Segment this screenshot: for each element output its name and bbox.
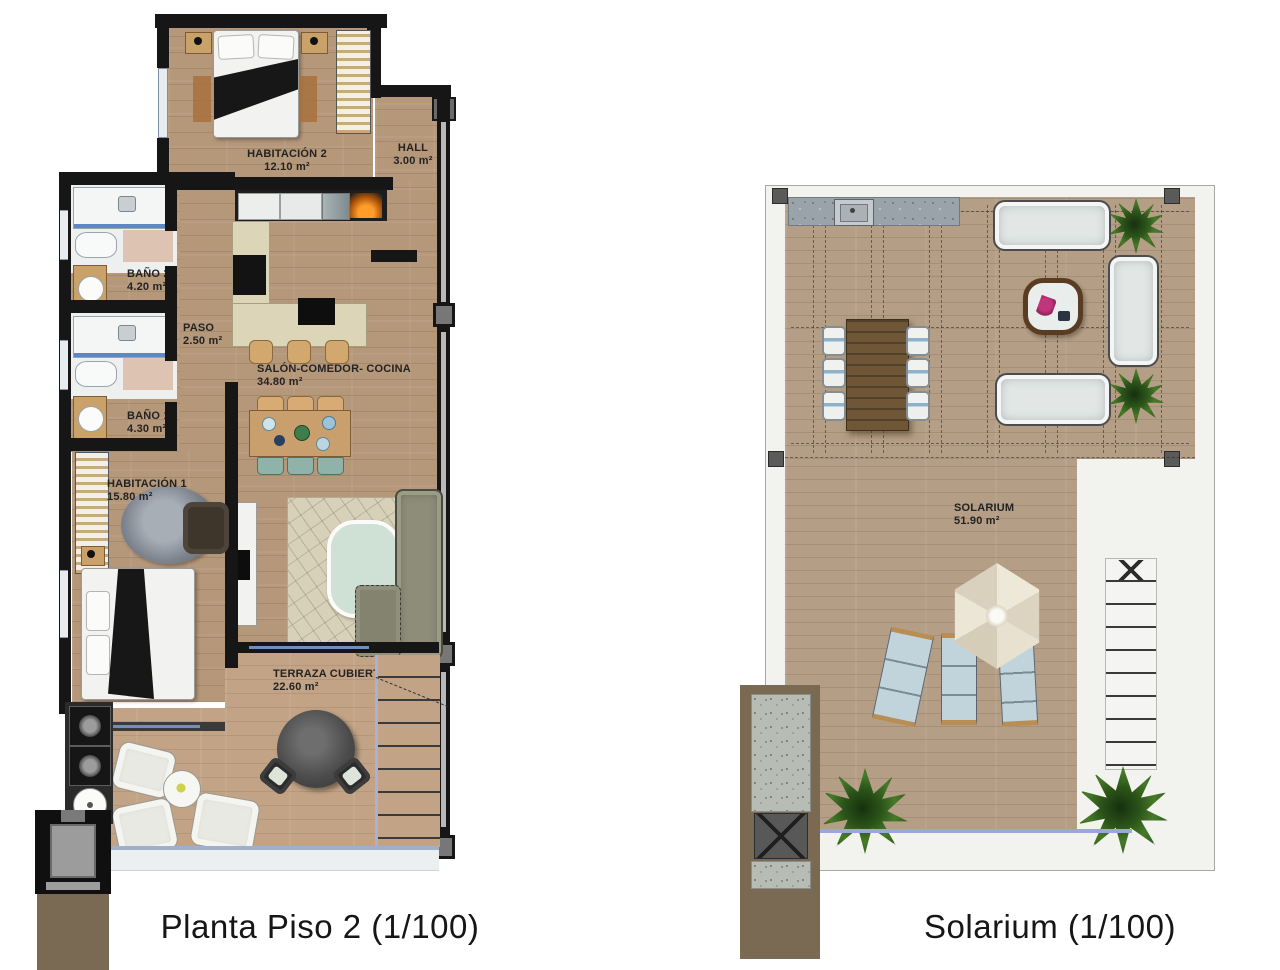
wardrobe-hab2 [336, 30, 371, 134]
flower-decor [1035, 295, 1057, 319]
room-label-habitacion2: HABITACIÓN 2 12.10 m² [227, 148, 347, 174]
stairs-diagonal [376, 677, 449, 707]
cooktop [298, 298, 335, 325]
bar-stool [325, 340, 349, 364]
gravel-strip [751, 694, 811, 812]
tap-dot [850, 208, 855, 213]
room-label-paso: PASO 2.50 m² [183, 322, 222, 348]
plan-solarium: SOLARIUM 51.90 m² [740, 180, 1222, 960]
room-label-habitacion1: HABITACIÓN 1 15.80 m² [107, 478, 187, 504]
bathmat-bano2 [123, 230, 173, 262]
salon-terraza-wall [225, 642, 439, 653]
plate [294, 425, 310, 441]
bed-blanket [108, 569, 154, 699]
toilet-bano1 [75, 361, 117, 387]
bathmat-bano1 [123, 358, 173, 390]
room-label-solarium: SOLARIUM 51.90 m² [954, 502, 1014, 528]
oven-glow [350, 193, 382, 218]
lamp-dot [194, 37, 202, 45]
plan-piso2: HABITACIÓN 2 12.10 m² HALL 3.00 m² SALÓN… [35, 10, 477, 960]
sink-basin [78, 276, 104, 302]
washer-drum [79, 755, 101, 777]
vanity-bano1 [73, 396, 107, 444]
armchair-dark-hab1 [183, 502, 229, 554]
hab1-window [60, 570, 68, 638]
cabinet [280, 193, 322, 220]
bedside-runner [193, 76, 211, 122]
shower-bano2 [73, 187, 175, 229]
cabinet [238, 193, 280, 220]
outdoor-dining-table [846, 319, 909, 431]
food-plate [172, 780, 190, 796]
shower-glass [74, 224, 174, 228]
kitchen-counter [235, 190, 387, 221]
toilet-bano2 [75, 232, 117, 258]
bedroom2-top-wall [155, 14, 387, 28]
bath-top-wall [59, 172, 235, 185]
gravel-strip [751, 861, 811, 889]
chimney-shaft [35, 810, 111, 894]
lounge-sofa-top [993, 200, 1111, 251]
lamp-dot [87, 550, 95, 558]
plate [274, 435, 285, 446]
terrace-side-table [163, 770, 201, 808]
washer [69, 746, 111, 786]
bedroom2-window [158, 68, 168, 138]
shower-bano1 [73, 316, 175, 358]
room-label-terraza: TERRAZA CUBIERTA 22.60 m² [273, 668, 387, 694]
outdoor-chair [822, 358, 846, 388]
outdoor-chair [822, 391, 846, 421]
bano1-right-wall-a [165, 313, 177, 361]
shower-glass [74, 353, 174, 357]
sofa-l [395, 489, 443, 659]
shaft-box [50, 824, 96, 878]
washer [69, 706, 111, 746]
shower-head [118, 196, 136, 212]
pillar [768, 451, 784, 467]
bath1-window [60, 340, 68, 390]
chair-cushion [267, 766, 288, 787]
bed-double-hab1 [81, 568, 195, 700]
bedside-runner [299, 76, 317, 122]
stone-path-piso2 [37, 894, 109, 970]
bano2-right-wall-a [165, 183, 177, 231]
outdoor-chair [906, 358, 930, 388]
lounge-coffee-table [1023, 278, 1083, 335]
sink-bowl [840, 204, 868, 222]
fridge [233, 255, 266, 295]
plate [316, 437, 330, 451]
room-label-bano2: BAÑO 2 4.20 m² [127, 268, 170, 294]
pillow [217, 34, 254, 60]
dining-chair [317, 457, 344, 475]
dining-table [249, 410, 351, 457]
facade-glass-strip [441, 122, 446, 302]
caption-solarium: Solarium (1/100) [905, 908, 1195, 946]
terrace-slider-glass [249, 646, 369, 649]
bed-blanket [214, 59, 298, 125]
bath2-window [60, 210, 68, 260]
drain-dot [87, 802, 93, 808]
stairs-solarium [1105, 558, 1157, 770]
stairs-piso2 [375, 655, 440, 847]
room-label-salon: SALÓN-COMEDOR- COCINA 34.80 m² [257, 363, 411, 389]
outdoor-chair [822, 326, 846, 356]
hall-bottom-wall-stub [371, 250, 417, 262]
shaft-bar [46, 882, 100, 890]
bar-stool [249, 340, 273, 364]
bar-stool [287, 340, 311, 364]
lounge-sofa-right [1108, 255, 1159, 367]
utility-column [65, 702, 113, 824]
bano1-hab1-wall [65, 438, 177, 451]
pillow [86, 591, 110, 631]
dining-chair [257, 457, 284, 475]
shaft-tab [61, 810, 85, 822]
pillow [86, 635, 110, 675]
room-label-hall: HALL 3.00 m² [387, 142, 439, 168]
outdoor-counter [788, 197, 960, 226]
lounge-sofa-bottom [995, 373, 1111, 426]
bedroom2-left-wall-upper [157, 14, 169, 68]
stairs-landing-x [1108, 560, 1154, 580]
pergola-boundary-line [785, 457, 1195, 458]
pillow [257, 34, 294, 60]
plate [322, 416, 336, 430]
pillar [433, 303, 455, 327]
cabinet [322, 193, 350, 220]
sink-basin [78, 406, 104, 432]
bano-divider-wall [65, 300, 177, 313]
facade-glass-strip [441, 672, 446, 827]
access-hatch [754, 813, 808, 859]
caption-piso2: Planta Piso 2 (1/100) [160, 908, 480, 946]
terrace-deck-border [65, 850, 439, 871]
outdoor-chair [906, 326, 930, 356]
outdoor-sink [834, 199, 874, 226]
stone-path-solarium [740, 685, 820, 959]
lamp-dot [310, 37, 318, 45]
outdoor-chair [906, 391, 930, 421]
dining-chair [287, 457, 314, 475]
room-label-bano1: BAÑO 1 4.30 m² [127, 410, 170, 436]
floorplan-sheet: { "plans": { "piso2": { "caption": "Plan… [0, 0, 1280, 960]
bed-double-hab2 [213, 30, 299, 138]
solarium-edge-line [788, 829, 1132, 833]
washer-drum [79, 715, 101, 737]
tv [237, 550, 250, 580]
chair-cushion [341, 766, 362, 787]
shower-head [118, 325, 136, 341]
tray [1058, 311, 1070, 321]
parasol-knot [986, 605, 1008, 627]
plate [262, 417, 276, 431]
